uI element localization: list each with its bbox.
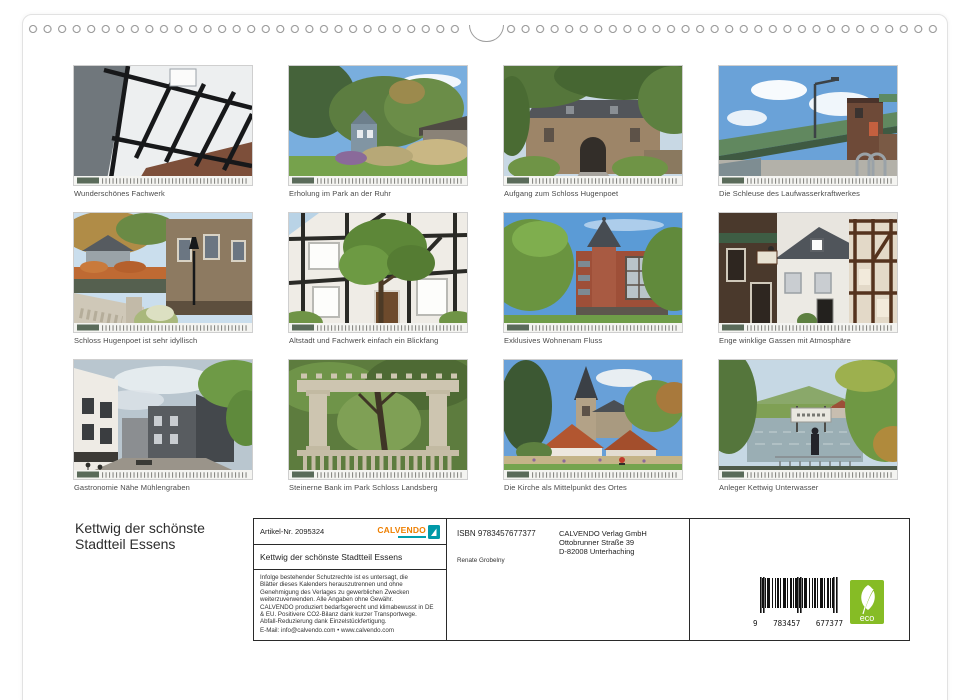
legal-text: Infolge bestehender Schutzrechte ist es … bbox=[260, 574, 440, 626]
svg-text:eco: eco bbox=[860, 613, 875, 623]
photo-altstadt-fachwerk bbox=[289, 213, 467, 332]
photo-caption: Die Schleuse des Laufwasserkraftwerkes bbox=[719, 189, 897, 198]
imprint-table: Artikel-Nr. 2095324 CALVENDO Kettwig der… bbox=[253, 518, 910, 641]
author-name: Renate Grobelny bbox=[457, 557, 505, 564]
photo-anleger bbox=[719, 360, 897, 479]
legal-line: Infolge bestehender Schutzrechte ist es … bbox=[260, 574, 440, 581]
title-line-1: Kettwig der schönste bbox=[75, 520, 205, 536]
photo-caption: Exklusives Wohnenam Fluss bbox=[504, 336, 682, 345]
imprint-right-column: 9 783457 677377 eco bbox=[690, 519, 909, 640]
ean-barcode: 9 783457 677377 bbox=[752, 577, 844, 628]
calendar-thumbnail: Wunderschönes Fachwerk bbox=[74, 66, 252, 198]
eco-leaf-icon: eco bbox=[850, 580, 884, 624]
calendar-thumbnail: Die Schleuse des Laufwasserkraftwerkes bbox=[719, 66, 897, 198]
legal-line: Genehmigung des Verlages zu gewerblichen… bbox=[260, 589, 440, 596]
imprint-middle-column: ISBN 9783457677377 CALVENDO Verlag GmbH … bbox=[447, 519, 690, 640]
calendar-title-large: Kettwig der schönste Stadtteil Essens bbox=[75, 520, 205, 552]
calendar-thumbnail: Die Kirche als Mittelpunkt des Ortes bbox=[504, 360, 682, 492]
imprint-left-column: Artikel-Nr. 2095324 CALVENDO Kettwig der… bbox=[254, 519, 447, 640]
spiral-binding-holes-right bbox=[506, 24, 942, 34]
calendar-thumbnail: Aufgang zum Schloss Hugenpoet bbox=[504, 66, 682, 198]
calendar-back-page: Wunderschönes Fachwerk Erholung im Park … bbox=[0, 0, 971, 700]
photo-caption: Schloss Hugenpoet ist sehr idyllisch bbox=[74, 336, 252, 345]
photo-caption: Anleger Kettwig Unterwasser bbox=[719, 483, 897, 492]
barcode-bars-icon bbox=[752, 577, 844, 613]
calendar-thumbnail: Altstadt und Fachwerk einfach ein Blickf… bbox=[289, 213, 467, 345]
photo-steinerne-bank bbox=[289, 360, 467, 479]
calvendo-logo: CALVENDO bbox=[377, 525, 440, 539]
photo-caption: Gastronomie Nähe Mühlengraben bbox=[74, 483, 252, 492]
photo-caption: Aufgang zum Schloss Hugenpoet bbox=[504, 189, 682, 198]
calendar-thumbnail: Steinerne Bank im Park Schloss Landsberg bbox=[289, 360, 467, 492]
calendar-thumbnail: Erholung im Park an der Ruhr bbox=[289, 66, 467, 198]
photo-kirche bbox=[504, 360, 682, 479]
calvendo-logo-icon bbox=[428, 525, 440, 539]
article-number: Artikel-Nr. 2095324 bbox=[260, 527, 324, 536]
photo-caption: Altstadt und Fachwerk einfach ein Blickf… bbox=[289, 336, 467, 345]
photo-caption: Die Kirche als Mittelpunkt des Ortes bbox=[504, 483, 682, 492]
legal-line: CALVENDO produziert bedarfsgerecht und k… bbox=[260, 604, 440, 611]
photo-caption: Enge winklige Gassen mit Atmosphäre bbox=[719, 336, 897, 345]
photo-wohnen-am-fluss bbox=[504, 213, 682, 332]
contact-line: E-Mail: info@calvendo.com • www.calvendo… bbox=[260, 627, 440, 634]
photo-caption: Steinerne Bank im Park Schloss Landsberg bbox=[289, 483, 467, 492]
calendar-thumbnail: Gastronomie Nähe Mühlengraben bbox=[74, 360, 252, 492]
eco-label: eco bbox=[850, 580, 884, 629]
legal-line: weiterzuverwenden. Alle Angaben ohne Gew… bbox=[260, 596, 440, 603]
calvendo-tagline-mark bbox=[398, 536, 426, 538]
article-number-cell: Artikel-Nr. 2095324 CALVENDO bbox=[254, 519, 446, 545]
photo-schloss-idyllisch bbox=[74, 213, 252, 332]
title-line-2: Stadtteil Essens bbox=[75, 536, 205, 552]
publisher-address: CALVENDO Verlag GmbH Ottobrunner Straße … bbox=[559, 529, 647, 556]
photo-caption: Wunderschönes Fachwerk bbox=[74, 189, 252, 198]
photo-gastronomie bbox=[74, 360, 252, 479]
legal-text-cell: Infolge bestehender Schutzrechte ist es … bbox=[254, 570, 446, 640]
calendar-thumbnail: Anleger Kettwig Unterwasser bbox=[719, 360, 897, 492]
isbn: ISBN 9783457677377 bbox=[457, 529, 536, 538]
calendar-thumbnail: Schloss Hugenpoet ist sehr idyllisch bbox=[74, 213, 252, 345]
photo-caption: Erholung im Park an der Ruhr bbox=[289, 189, 467, 198]
photo-park-ruhr bbox=[289, 66, 467, 185]
spiral-binding-holes-left bbox=[28, 24, 464, 34]
photo-schleuse bbox=[719, 66, 897, 185]
calendar-thumbnail: Enge winklige Gassen mit Atmosphäre bbox=[719, 213, 897, 345]
calendar-thumbnail: Exklusives Wohnenam Fluss bbox=[504, 213, 682, 345]
calendar-title-cell: Kettwig der schönste Stadtteil Essens bbox=[254, 545, 446, 570]
barcode-digits: 9 783457 677377 bbox=[752, 619, 844, 628]
photo-gassen bbox=[719, 213, 897, 332]
calvendo-wordmark: CALVENDO bbox=[377, 525, 426, 538]
legal-line: Abfall-Reduzierung dank Einzelstückferti… bbox=[260, 618, 440, 625]
photo-schloss-aufgang bbox=[504, 66, 682, 185]
photo-fachwerk bbox=[74, 66, 252, 185]
legal-line: Blätter dieses Kalenders herauszutrennen… bbox=[260, 581, 440, 588]
legal-line: & EU. Positivere CO2-Bilanz dank kurzer … bbox=[260, 611, 440, 618]
